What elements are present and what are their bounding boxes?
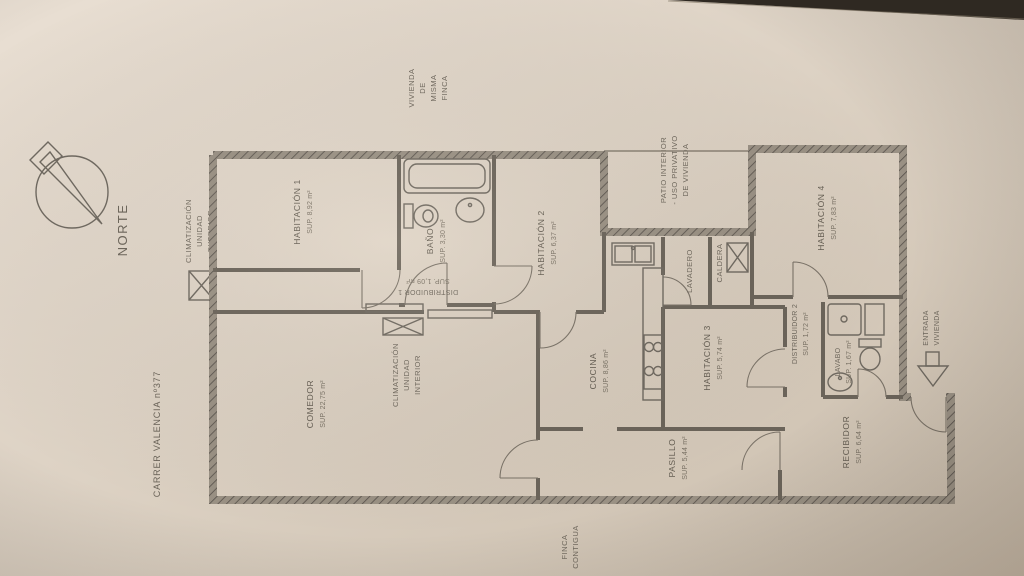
photo-vignette: [0, 0, 1024, 576]
floor-plan-photo: NORTE CARRER VALENCIA nº377 CLIMATIZACIÓ…: [0, 0, 1024, 576]
floor-plan-svg: NORTE CARRER VALENCIA nº377 CLIMATIZACIÓ…: [0, 0, 1024, 576]
